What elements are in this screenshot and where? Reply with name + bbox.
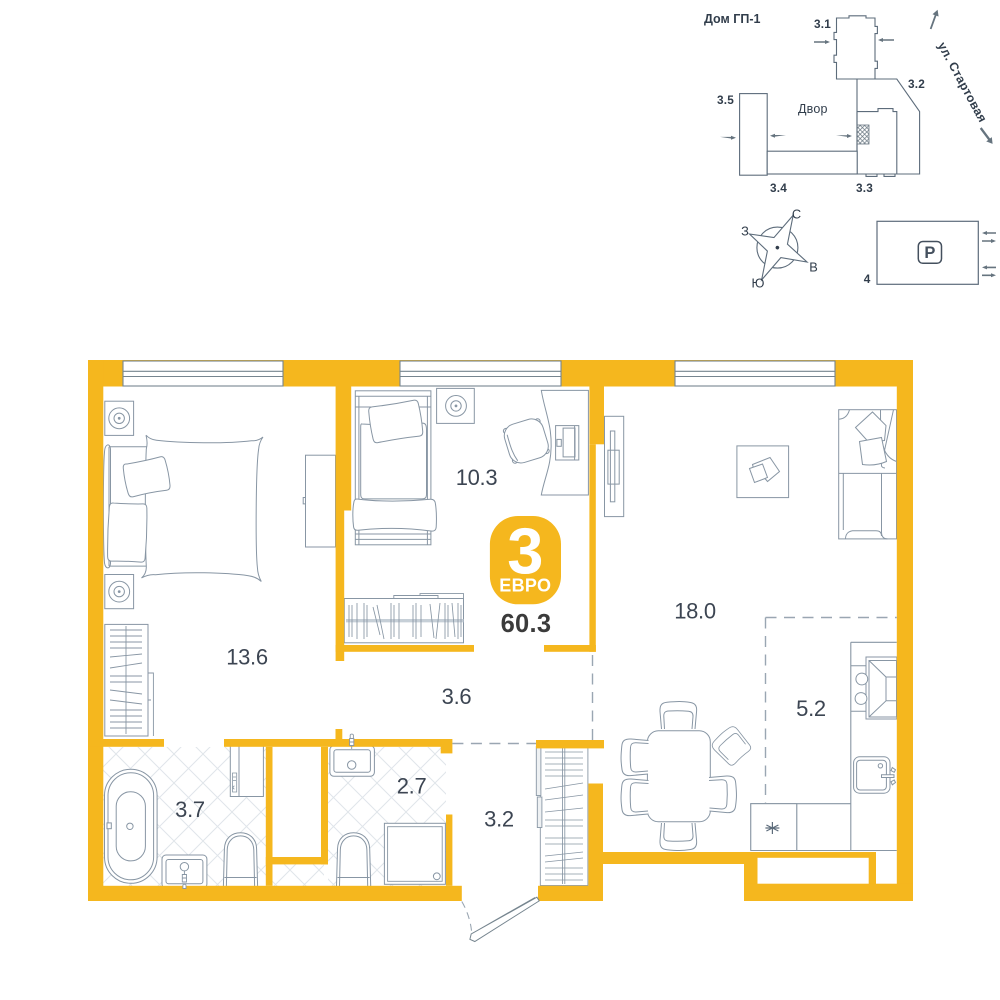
svg-text:3.3: 3.3	[856, 181, 873, 195]
svg-text:ЕВРО: ЕВРО	[499, 576, 551, 596]
svg-text:3.6: 3.6	[442, 684, 472, 709]
svg-text:В: В	[809, 260, 818, 275]
svg-text:3.5: 3.5	[717, 93, 734, 107]
svg-text:3.7: 3.7	[175, 797, 205, 822]
svg-text:10.3: 10.3	[456, 465, 498, 490]
svg-text:5.2: 5.2	[796, 696, 826, 721]
svg-text:2.7: 2.7	[397, 774, 427, 799]
svg-text:3.1: 3.1	[814, 17, 831, 31]
svg-text:P: P	[924, 244, 935, 262]
svg-text:Двор: Двор	[798, 102, 828, 116]
svg-text:13.6: 13.6	[226, 645, 268, 670]
svg-text:18.0: 18.0	[674, 599, 716, 624]
svg-text:3.2: 3.2	[484, 807, 514, 832]
svg-text:З: З	[741, 224, 749, 239]
svg-text:3.4: 3.4	[770, 181, 787, 195]
svg-text:Ю: Ю	[752, 276, 765, 291]
svg-text:60.3: 60.3	[501, 610, 552, 638]
svg-text:3.2: 3.2	[908, 77, 925, 91]
svg-text:4: 4	[864, 272, 871, 286]
svg-text:Дом ГП-1: Дом ГП-1	[704, 12, 760, 26]
svg-text:С: С	[792, 207, 801, 222]
